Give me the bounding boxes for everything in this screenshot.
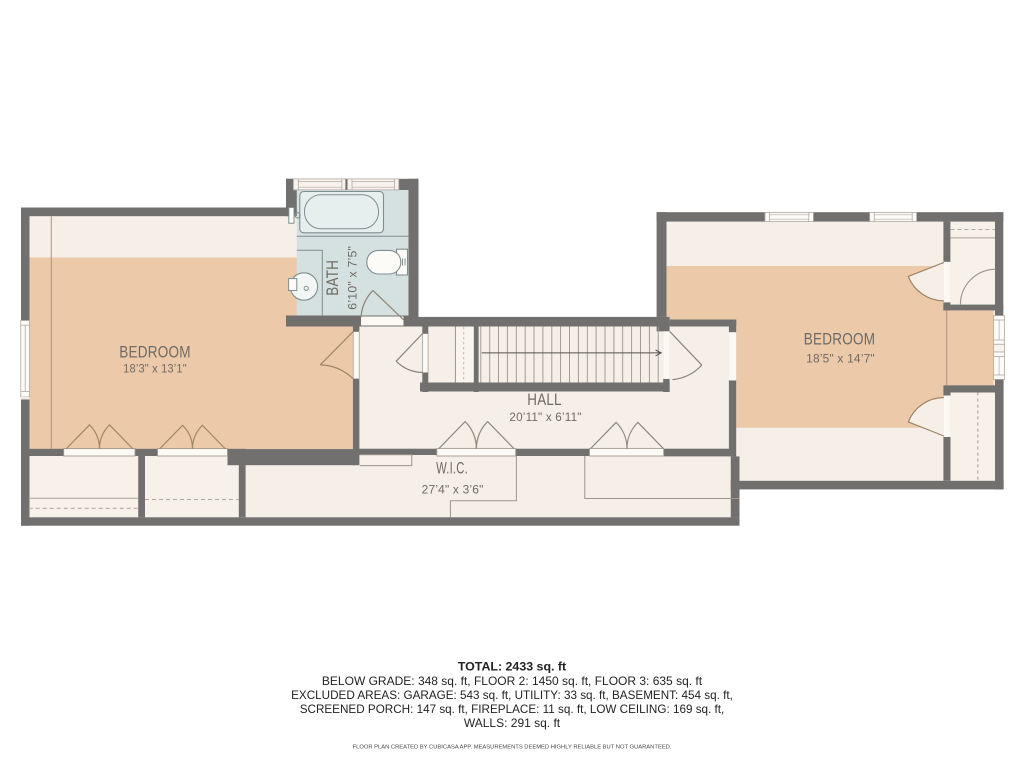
svg-text:BATH: BATH: [324, 260, 343, 296]
svg-text:18’3" x 13’1": 18’3" x 13’1": [123, 362, 187, 376]
svg-text:EXCLUDED AREAS: GARAGE: 543 sq: EXCLUDED AREAS: GARAGE: 543 sq. ft, UTIL…: [291, 689, 733, 702]
svg-text:6’10" x 7’5": 6’10" x 7’5": [346, 246, 360, 310]
svg-text:BEDROOM: BEDROOM: [804, 330, 876, 348]
svg-text:27’4" x 3’6": 27’4" x 3’6": [422, 482, 484, 496]
svg-text:20’11" x 6’11": 20’11" x 6’11": [509, 410, 581, 424]
svg-text:SCREENED PORCH: 147 sq. ft, FI: SCREENED PORCH: 147 sq. ft, FIREPLACE: 1…: [300, 703, 725, 716]
svg-text:HALL: HALL: [527, 392, 561, 409]
svg-text:BELOW GRADE: 348 sq. ft, FLOOR: BELOW GRADE: 348 sq. ft, FLOOR 2: 1450 s…: [322, 674, 703, 688]
svg-text:BEDROOM: BEDROOM: [119, 343, 191, 361]
svg-text:W.I.C.: W.I.C.: [436, 459, 468, 478]
svg-text:WALLS: 291 sq. ft: WALLS: 291 sq. ft: [464, 716, 561, 730]
svg-text:FLOOR PLAN CREATED BY CUBICASA: FLOOR PLAN CREATED BY CUBICASA APP. MEAS…: [353, 745, 672, 751]
svg-text:TOTAL: 2433 sq. ft: TOTAL: 2433 sq. ft: [458, 660, 566, 674]
svg-text:18’5" x 14’7": 18’5" x 14’7": [806, 351, 875, 365]
